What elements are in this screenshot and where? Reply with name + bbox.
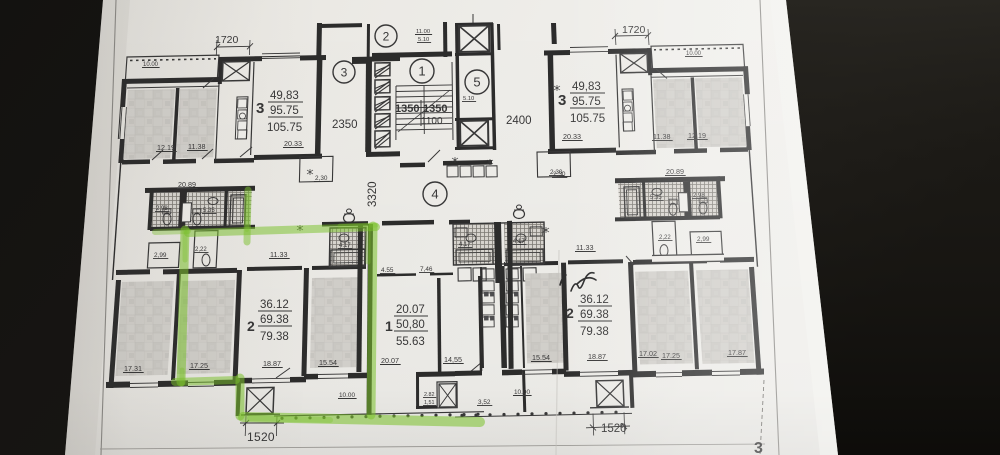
svg-text:15.54: 15.54 [532,353,550,362]
svg-text:2350: 2350 [332,119,358,131]
svg-text:50,80: 50,80 [396,319,425,331]
svg-text:1350: 1350 [395,103,419,115]
svg-text:3320: 3320 [367,181,379,207]
svg-text:4: 4 [431,187,438,202]
svg-text:2: 2 [383,29,390,43]
svg-text:3,52: 3,52 [478,399,491,406]
svg-text:2,30: 2,30 [315,175,328,182]
svg-text:15.54: 15.54 [319,358,337,367]
svg-text:1350: 1350 [423,103,447,115]
svg-text:1: 1 [385,318,393,334]
svg-text:55.63: 55.63 [396,336,425,348]
svg-text:20.07: 20.07 [381,356,399,365]
svg-text:7,46: 7,46 [420,266,433,273]
svg-text:1: 1 [418,64,425,79]
svg-text:4.55: 4.55 [381,267,394,274]
svg-text:2400: 2400 [506,115,532,127]
svg-text:1100: 1100 [421,116,443,127]
svg-text:5: 5 [473,75,480,90]
svg-text:10.00: 10.00 [339,392,355,399]
svg-text:20.07: 20.07 [396,304,425,316]
svg-text:10.00: 10.00 [514,389,530,396]
svg-text:14,55: 14,55 [444,355,462,364]
svg-text:3: 3 [341,65,348,79]
